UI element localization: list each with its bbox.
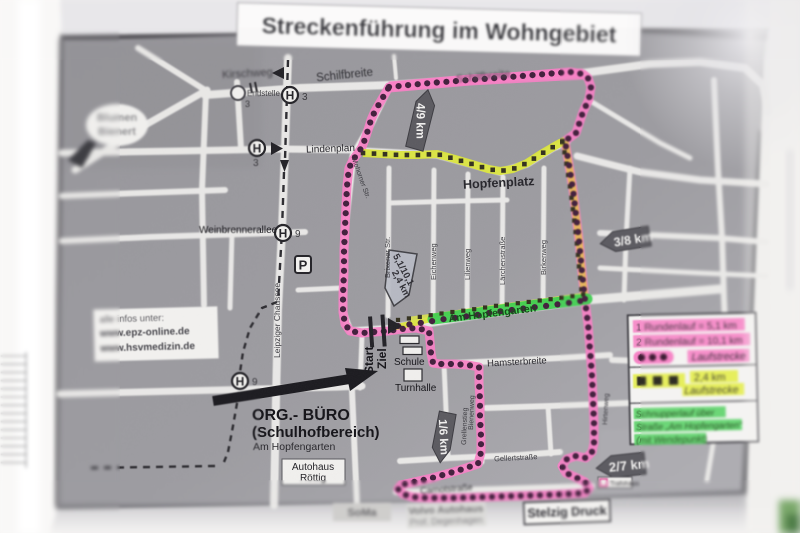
svg-text:1/6 km: 1/6 km: [436, 419, 450, 455]
svg-text:Am Hopfengarten: Am Hopfengarten: [253, 441, 335, 453]
svg-text:4/9 km: 4/9 km: [413, 103, 425, 139]
svg-text:Lindenplan: Lindenplan: [306, 143, 355, 156]
svg-text:3: 3: [302, 92, 308, 103]
svg-text:H: H: [279, 227, 288, 241]
svg-text:Eichenweg: Eichenweg: [429, 243, 438, 280]
svg-text:(Schulhofbereich): (Schulhofbereich): [252, 424, 380, 441]
svg-text:Schule: Schule: [394, 357, 425, 368]
svg-text:Brixener Str.: Brixener Str.: [383, 237, 392, 278]
svg-text:Autohaus: Autohaus: [292, 462, 334, 473]
svg-text:ORG.- BÜRO: ORG.- BÜRO: [252, 405, 350, 424]
svg-text:Bienenweg: Bienenweg: [468, 395, 476, 430]
svg-text:Lärchenstraße: Lärchenstraße: [498, 237, 507, 285]
svg-text:9: 9: [295, 229, 301, 240]
svg-text:P: P: [299, 258, 308, 273]
svg-text:Ziel: Ziel: [375, 348, 389, 369]
svg-text:Turnhalle: Turnhalle: [395, 383, 437, 394]
svg-text:H: H: [286, 89, 295, 103]
svg-text:Grellenstieg: Grellenstieg: [461, 407, 469, 445]
svg-text:Leipziger Chaussee: Leipziger Chaussee: [272, 283, 282, 358]
svg-text:Lilienweg: Lilienweg: [463, 249, 472, 280]
